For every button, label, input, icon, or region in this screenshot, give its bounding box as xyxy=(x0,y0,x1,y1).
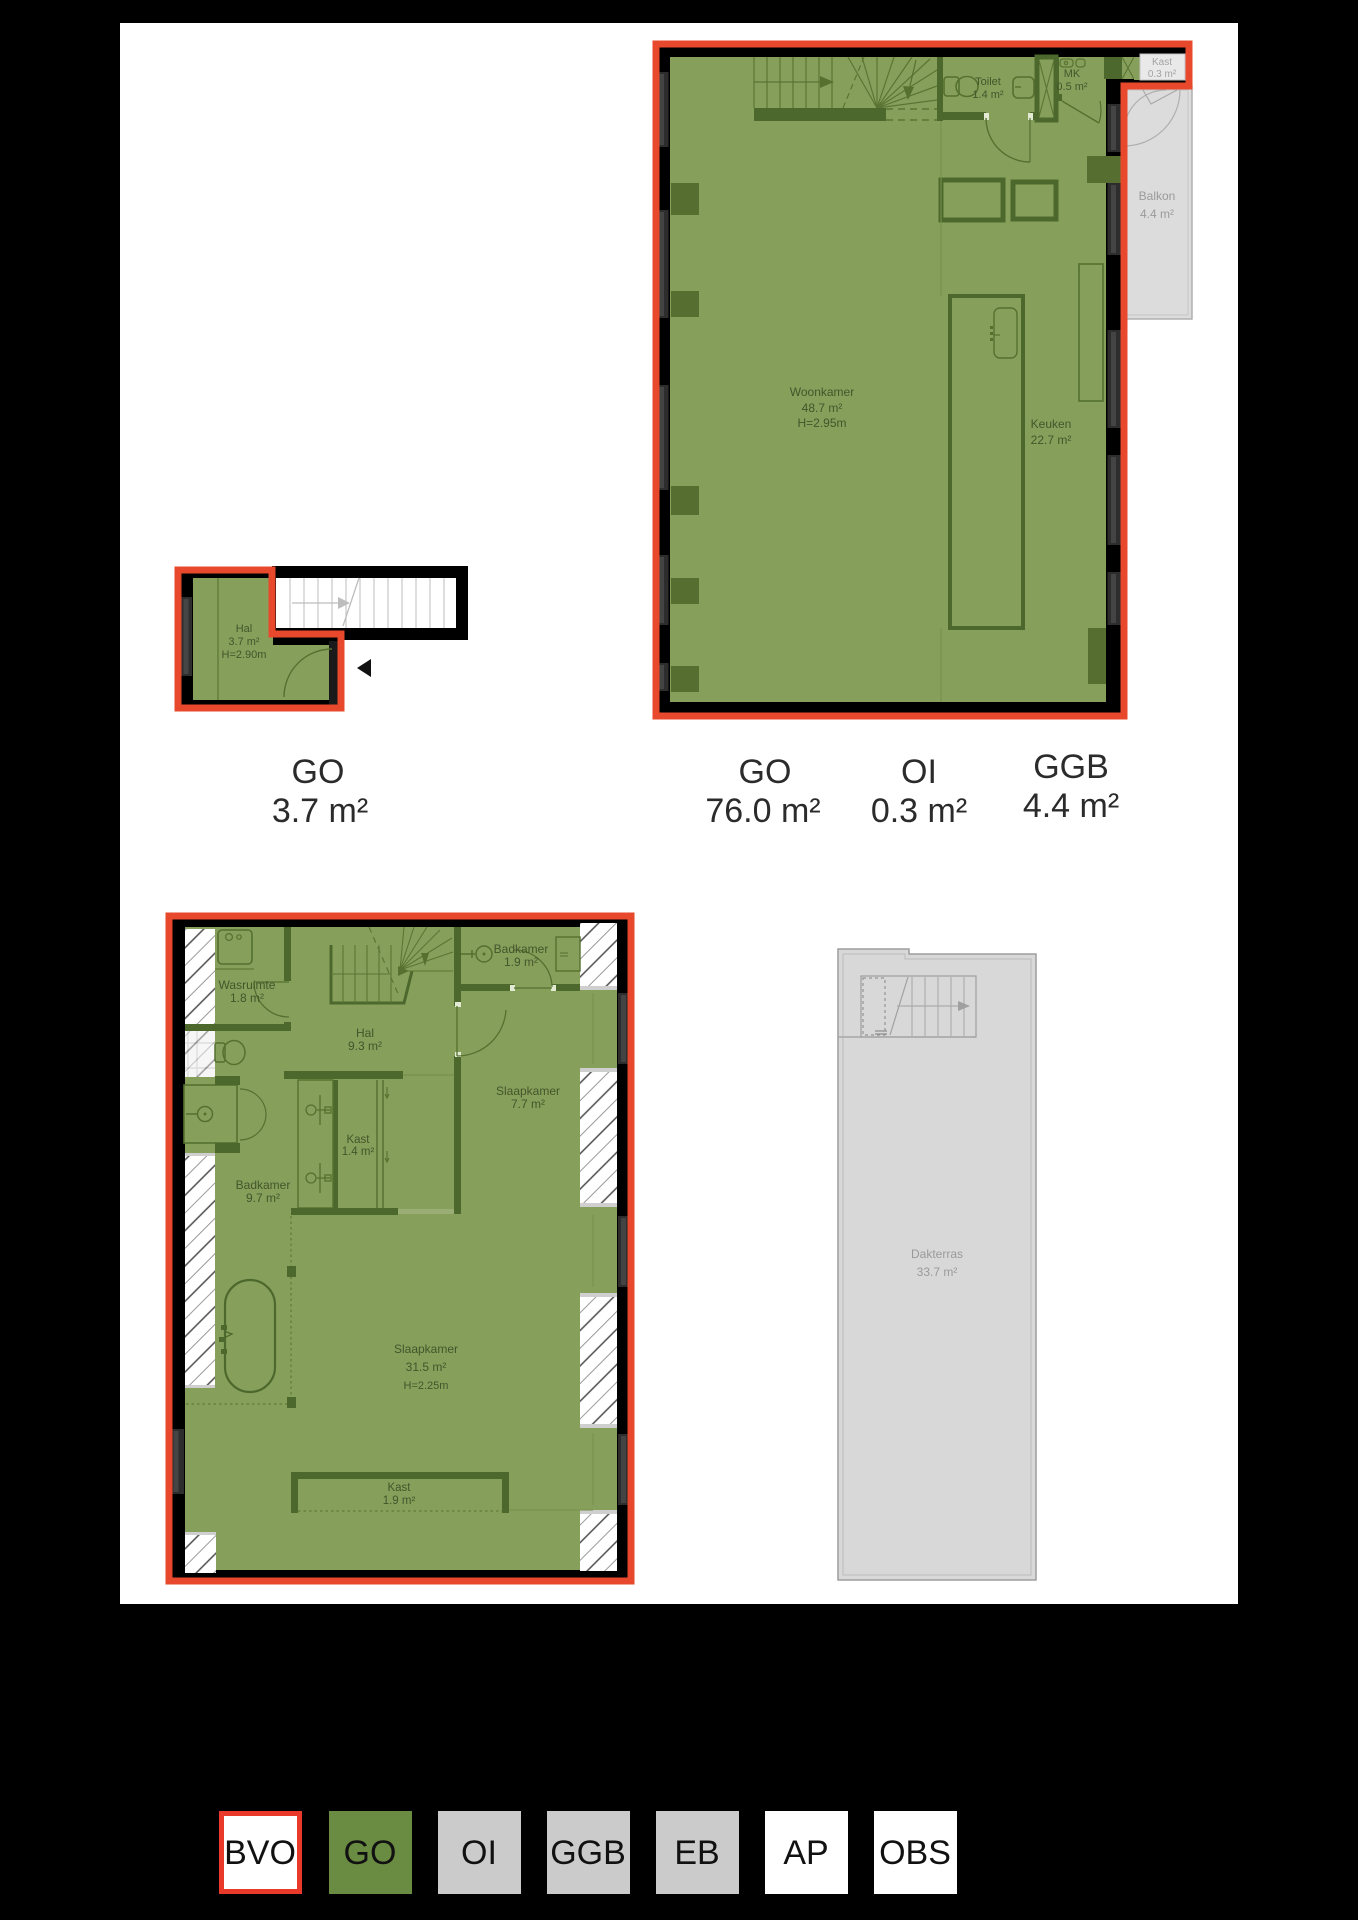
svg-text:BVO: BVO xyxy=(224,1834,296,1872)
svg-text:48.7 m²: 48.7 m² xyxy=(802,401,843,415)
svg-text:1.9 m²: 1.9 m² xyxy=(504,955,538,969)
svg-text:Dakterras: Dakterras xyxy=(911,1247,963,1261)
svg-text:Toilet: Toilet xyxy=(975,76,1001,88)
svg-text:Kast: Kast xyxy=(346,1134,370,1146)
svg-text:31.5 m²: 31.5 m² xyxy=(406,1360,447,1374)
svg-text:GO: GO xyxy=(292,753,345,791)
svg-text:H=2.90m: H=2.90m xyxy=(222,649,267,661)
svg-text:33.7 m²: 33.7 m² xyxy=(917,1265,958,1279)
svg-text:Hal: Hal xyxy=(236,623,253,635)
svg-text:9.7 m²: 9.7 m² xyxy=(246,1191,280,1205)
svg-text:4.4 m²: 4.4 m² xyxy=(1023,787,1119,825)
svg-text:1.8 m²: 1.8 m² xyxy=(230,991,264,1005)
svg-text:Hal: Hal xyxy=(356,1026,374,1040)
svg-text:Wasruimte: Wasruimte xyxy=(219,978,276,992)
svg-text:0.3 m²: 0.3 m² xyxy=(871,792,967,830)
svg-text:GO: GO xyxy=(739,753,792,791)
svg-text:EB: EB xyxy=(674,1834,719,1872)
svg-text:1.4 m²: 1.4 m² xyxy=(972,89,1004,101)
svg-text:3.7 m²: 3.7 m² xyxy=(272,792,368,830)
svg-text:H=2.25m: H=2.25m xyxy=(404,1380,449,1392)
svg-text:1.9 m²: 1.9 m² xyxy=(383,1495,416,1507)
svg-text:H=2.95m: H=2.95m xyxy=(797,416,846,430)
svg-text:AP: AP xyxy=(783,1834,828,1872)
svg-text:OI: OI xyxy=(461,1834,497,1872)
svg-text:1.4 m²: 1.4 m² xyxy=(342,1146,375,1158)
svg-text:0.5 m²: 0.5 m² xyxy=(1056,81,1088,93)
svg-text:Balkon: Balkon xyxy=(1139,189,1176,203)
svg-text:MK: MK xyxy=(1064,68,1081,80)
svg-text:76.0 m²: 76.0 m² xyxy=(705,792,820,830)
svg-text:4.4 m²: 4.4 m² xyxy=(1140,207,1174,221)
svg-text:Badkamer: Badkamer xyxy=(494,942,549,956)
svg-text:Slaapkamer: Slaapkamer xyxy=(394,1342,458,1356)
svg-text:Badkamer: Badkamer xyxy=(236,1178,291,1192)
svg-text:Slaapkamer: Slaapkamer xyxy=(496,1084,560,1098)
svg-text:3.7 m²: 3.7 m² xyxy=(228,636,260,648)
svg-text:OBS: OBS xyxy=(879,1834,951,1872)
svg-text:Woonkamer: Woonkamer xyxy=(790,385,854,399)
svg-text:GGB: GGB xyxy=(550,1834,626,1872)
svg-text:9.3 m²: 9.3 m² xyxy=(348,1039,382,1053)
svg-text:OI: OI xyxy=(901,753,937,791)
svg-text:Kast: Kast xyxy=(387,1482,411,1494)
svg-text:22.7 m²: 22.7 m² xyxy=(1031,433,1072,447)
svg-text:0.3 m²: 0.3 m² xyxy=(1148,69,1177,80)
svg-text:Keuken: Keuken xyxy=(1031,417,1072,431)
svg-text:7.7 m²: 7.7 m² xyxy=(511,1097,545,1111)
svg-text:GO: GO xyxy=(344,1834,397,1872)
svg-text:GGB: GGB xyxy=(1033,748,1109,786)
svg-text:Kast: Kast xyxy=(1152,57,1172,68)
